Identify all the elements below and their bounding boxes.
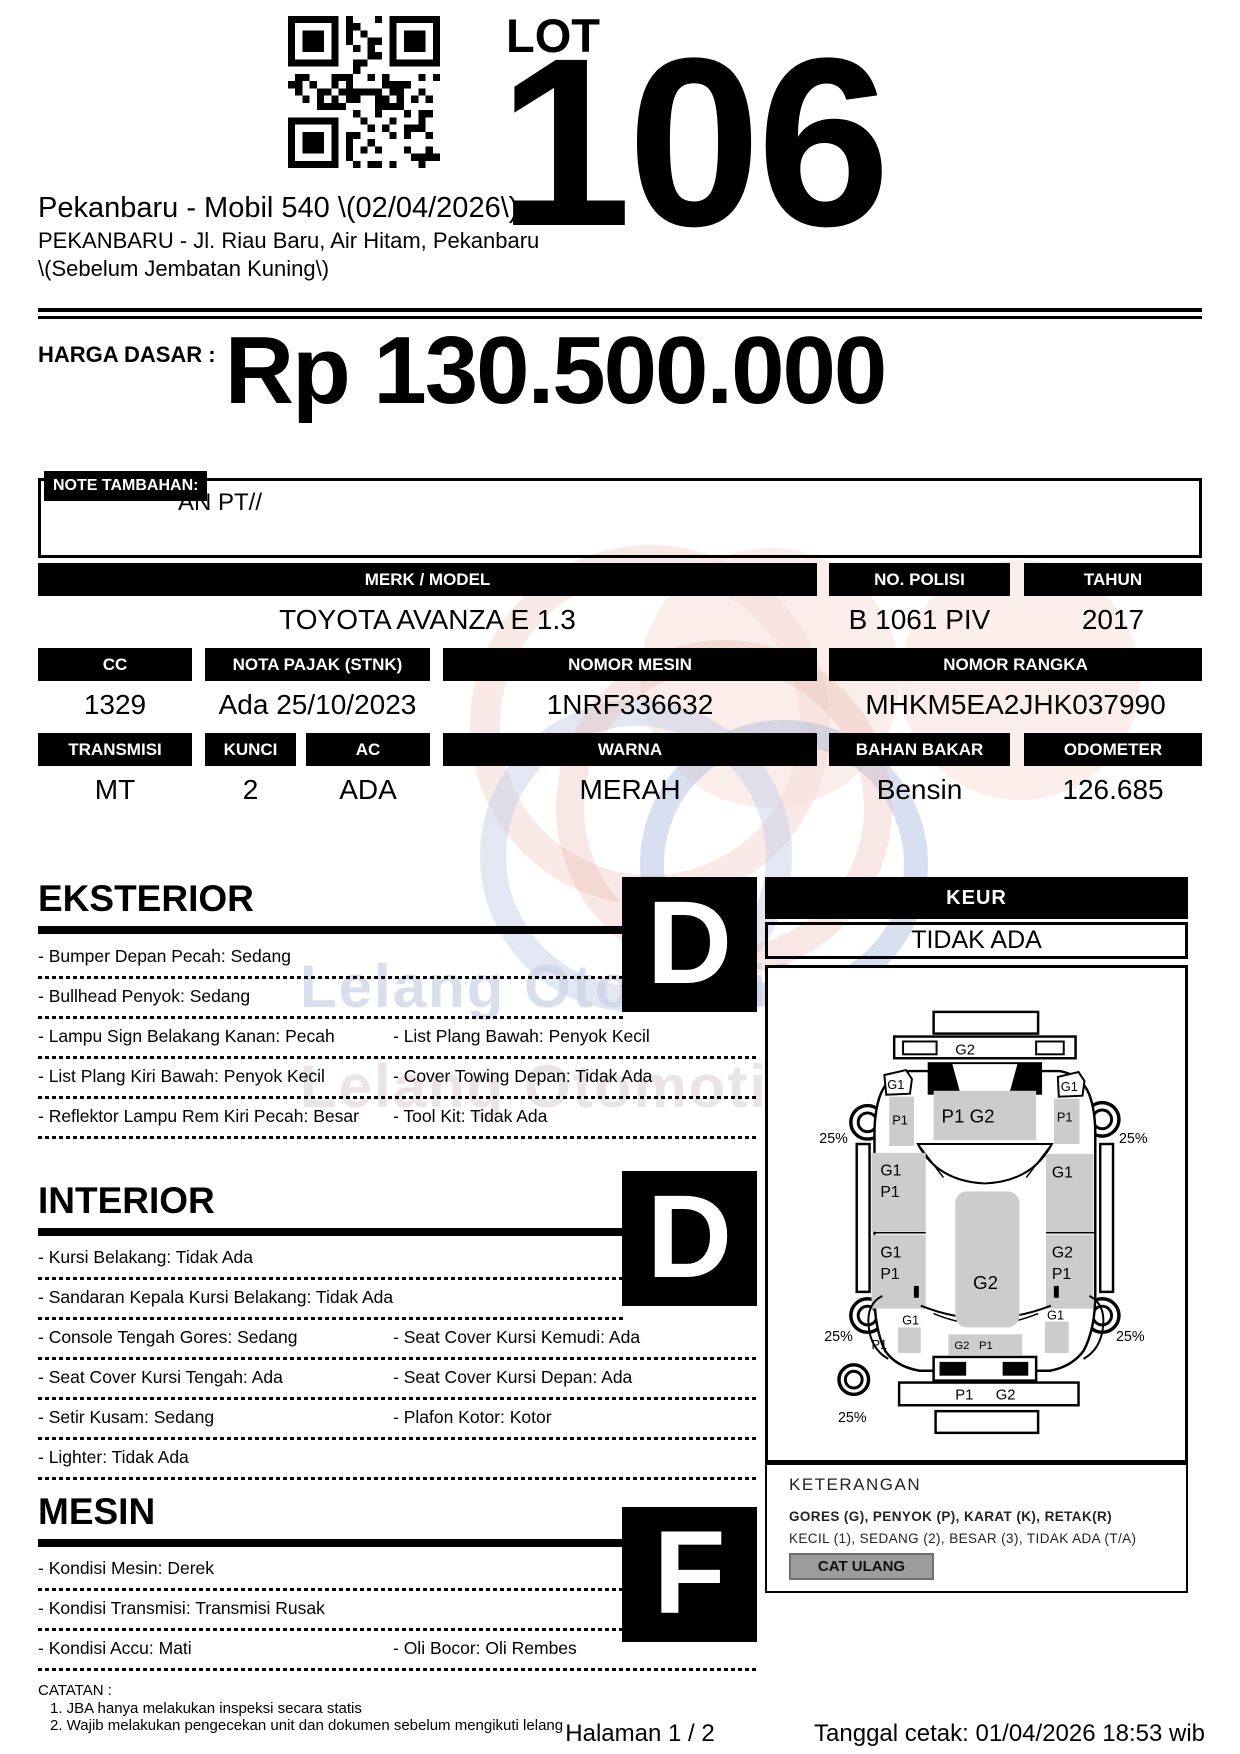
damage-patch-front-left-fender (898, 1327, 921, 1353)
damage-label: P1 (1052, 1266, 1071, 1283)
damage-label: P1 (872, 1337, 888, 1352)
damage-label: G1 (1061, 1079, 1078, 1094)
item-text: - Seat Cover Kursi Depan: Ada (393, 1367, 632, 1388)
item-text: - Kondisi Mesin: Derek (38, 1558, 214, 1579)
item-text: - Console Tengah Gores: Sedang (38, 1327, 297, 1348)
item-text: - List Plang Kiri Bawah: Penyok Kecil (38, 1066, 325, 1087)
auction-title: Pekanbaru - Mobil 540 \(02/04/2026\) (38, 192, 518, 225)
divider (38, 1628, 623, 1631)
damage-patch-roof (955, 1191, 1019, 1327)
section-rule (38, 1228, 623, 1236)
value-odometer: 126.685 (1024, 769, 1202, 811)
item-text: - Kondisi Accu: Mati (38, 1638, 192, 1659)
item-text: - Kondisi Transmisi: Transmisi Rusak (38, 1598, 325, 1619)
divider (38, 1277, 623, 1280)
keterangan-line1: GORES (G), PENYOK (P), KARAT (K), RETAK(… (789, 1509, 1112, 1524)
keterangan-box: KETERANGAN GORES (G), PENYOK (P), KARAT … (765, 1463, 1188, 1593)
header-nomor-mesin: NOMOR MESIN (443, 648, 817, 681)
damage-label: G1 (887, 1077, 904, 1092)
divider (38, 1357, 757, 1360)
header-tahun: TAHUN (1024, 563, 1202, 596)
header-kunci: KUNCI (205, 733, 296, 766)
damage-label: G2 (996, 1387, 1016, 1403)
page-number: Halaman 1 / 2 (480, 1720, 800, 1748)
list-item: - Lampu Sign Belakang Kanan: Pecah- List… (38, 1024, 757, 1064)
header-nomor-rangka: NOMOR RANGKA (829, 648, 1202, 681)
item-text: - Bumper Depan Pecah: Sedang (38, 946, 291, 967)
item-text: - List Plang Bawah: Penyok Kecil (393, 1026, 650, 1047)
value-transmisi: MT (38, 769, 192, 811)
item-text: - Kursi Belakang: Tidak Ada (38, 1247, 253, 1268)
catatan-label: CATATAN : (38, 1682, 112, 1699)
divider (38, 1136, 757, 1139)
rear-garnish-cutout (952, 1064, 1017, 1093)
item-text: - Seat Cover Kursi Kemudi: Ada (393, 1327, 640, 1348)
item-text: - Bullhead Penyok: Sedang (38, 986, 250, 1007)
item-text: - Cover Towing Depan: Tidak Ada (393, 1066, 652, 1087)
divider (38, 1588, 623, 1591)
catatan-item: 1. JBA hanya melakukan inspeksi secara s… (50, 1700, 362, 1717)
auction-address-note: \(Sebelum Jembatan Kuning\) (38, 256, 329, 282)
grade-eksterior: D (622, 877, 757, 1012)
rear-light (903, 1041, 937, 1054)
damage-label: G1 (880, 1244, 901, 1261)
wheel-percent-label: 25% (819, 1131, 848, 1147)
section-title-interior: INTERIOR (38, 1180, 215, 1222)
list-item: - Lighter: Tidak Ada (38, 1445, 757, 1485)
divider (38, 1016, 623, 1019)
section-title-mesin: MESIN (38, 1491, 155, 1533)
rear-light (1036, 1041, 1064, 1054)
wheel-percent-label: 25% (1119, 1131, 1148, 1147)
divider (38, 1056, 757, 1059)
damage-label: P1 (892, 1112, 908, 1127)
keterangan-title: KETERANGAN (789, 1475, 921, 1495)
list-item: - Kondisi Accu: Mati- Oli Bocor: Oli Rem… (38, 1636, 757, 1676)
lot-number: 106 (498, 22, 886, 262)
note-label: NOTE TAMBAHAN: (44, 471, 207, 501)
grille-block (940, 1362, 967, 1376)
damage-label: P1 (979, 1340, 993, 1352)
value-tahun: 2017 (1024, 599, 1202, 641)
keur-header: KEUR (765, 877, 1188, 919)
value-ac: ADA (306, 769, 430, 811)
value-nota-pajak: Ada 25/10/2023 (205, 684, 430, 726)
auction-address: PEKANBARU - Jl. Riau Baru, Air Hitam, Pe… (38, 228, 539, 254)
cat-ulang-badge: CAT ULANG (789, 1553, 934, 1580)
item-text: - Reflektor Lampu Rem Kiri Pecah: Besar (38, 1106, 359, 1127)
divider (38, 1397, 757, 1400)
list-item: - Setir Kusam: Sedang- Plafon Kotor: Kot… (38, 1405, 757, 1445)
damage-label: G2 (955, 1042, 975, 1058)
value-merk-model: TOYOTA AVANZA E 1.3 (38, 599, 817, 641)
value-no-polisi: B 1061 PIV (829, 599, 1010, 641)
header-no-polisi: NO. POLISI (829, 563, 1010, 596)
damage-label: G1 (880, 1163, 901, 1180)
left-skirt (857, 1144, 870, 1292)
section-rule (38, 926, 623, 934)
value-warna: MERAH (443, 769, 817, 811)
base-price-value: Rp 130.500.000 (140, 316, 970, 426)
value-nomor-mesin: 1NRF336632 (443, 684, 817, 726)
damage-diagram: G2 P1 G2 G1 P1 G1 P1 G1 P1 G1 (765, 965, 1188, 1463)
wheel-percent-label: 25% (838, 1410, 867, 1426)
keterangan-line2: KECIL (1), SEDANG (2), BESAR (3), TIDAK … (789, 1531, 1136, 1546)
damage-label: P1 (955, 1387, 973, 1403)
header-nota-pajak: NOTA PAJAK (STNK) (205, 648, 430, 681)
damage-label: P1 (880, 1266, 899, 1283)
front-plate (936, 1411, 1039, 1433)
header-ac: AC (306, 733, 430, 766)
section-rule (38, 1539, 623, 1547)
rear-plate (934, 1012, 1038, 1034)
item-text: - Lampu Sign Belakang Kanan: Pecah (38, 1026, 335, 1047)
damage-label: G2 (954, 1340, 969, 1352)
grille-block (1003, 1362, 1029, 1376)
item-text: - Setir Kusam: Sedang (38, 1407, 214, 1428)
front-bumper (899, 1383, 1078, 1406)
door-handle (1054, 1286, 1059, 1298)
damage-label: G2 (973, 1272, 998, 1293)
grade-mesin: F (622, 1507, 757, 1642)
value-cc: 1329 (38, 684, 192, 726)
damage-label: G1 (902, 1312, 919, 1327)
keur-value: TIDAK ADA (765, 922, 1188, 959)
item-text: - Lighter: Tidak Ada (38, 1447, 189, 1468)
spare-wheel (839, 1365, 869, 1395)
damage-label: P1 G2 (942, 1105, 995, 1126)
section-title-eksterior: EKSTERIOR (38, 878, 254, 920)
item-text: - Sandaran Kepala Kursi Belakang: Tidak … (38, 1287, 393, 1308)
divider (38, 1437, 757, 1440)
damage-label: G2 (1052, 1244, 1073, 1261)
wheel-percent-label: 25% (824, 1329, 853, 1345)
header-merk-model: MERK / MODEL (38, 563, 817, 596)
divider (38, 976, 623, 979)
car-top-view: G2 P1 G2 G1 P1 G1 P1 G1 P1 G1 (768, 968, 1185, 1460)
header-transmisi: TRANSMISI (38, 733, 192, 766)
header-warna: WARNA (443, 733, 817, 766)
divider (38, 1317, 623, 1320)
list-item: - Reflektor Lampu Rem Kiri Pecah: Besar-… (38, 1104, 757, 1144)
item-text: - Plafon Kotor: Kotor (393, 1407, 552, 1428)
door-handle (914, 1286, 919, 1298)
wheel-percent-label: 25% (1116, 1329, 1145, 1345)
damage-label: G1 (1047, 1307, 1064, 1322)
damage-patch-front-right-fender (1045, 1321, 1069, 1353)
item-text: - Seat Cover Kursi Tengah: Ada (38, 1367, 283, 1388)
list-item: - Seat Cover Kursi Tengah: Ada- Seat Cov… (38, 1365, 757, 1405)
value-kunci: 2 (205, 769, 296, 811)
damage-label: P1 (1057, 1109, 1073, 1124)
list-item: - List Plang Kiri Bawah: Penyok Kecil- C… (38, 1064, 757, 1104)
divider (38, 1096, 757, 1099)
divider (38, 1668, 757, 1671)
print-timestamp: Tanggal cetak: 01/04/2026 18:53 wib (814, 1720, 1205, 1748)
header-odometer: ODOMETER (1024, 733, 1202, 766)
item-text: - Tool Kit: Tidak Ada (393, 1106, 547, 1127)
qr-code (288, 16, 440, 168)
header-bahan-bakar: BAHAN BAKAR (829, 733, 1010, 766)
damage-label: G1 (1052, 1165, 1073, 1182)
value-bahan-bakar: Bensin (829, 769, 1010, 811)
divider (38, 1477, 757, 1480)
list-item: - Console Tengah Gores: Sedang- Seat Cov… (38, 1325, 757, 1365)
right-skirt (1100, 1144, 1113, 1292)
value-nomor-rangka: MHKM5EA2JHK037990 (829, 684, 1202, 726)
header-cc: CC (38, 648, 192, 681)
item-text: - Oli Bocor: Oli Rembes (393, 1638, 577, 1659)
grade-interior: D (622, 1171, 757, 1306)
damage-label: P1 (880, 1184, 899, 1201)
lot-sheet-page: Lelang Otomotif No.1 Lelang Otomotif LOT… (0, 0, 1240, 1754)
